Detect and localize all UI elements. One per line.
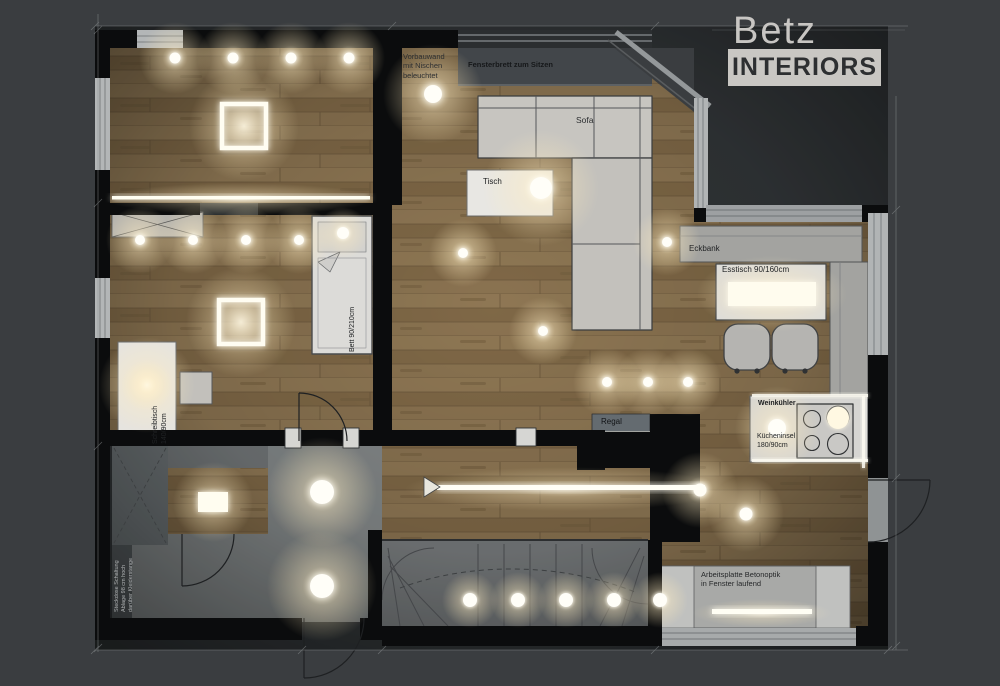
led-strip-office [112,196,370,200]
window-right-living [694,98,708,208]
window-left-bedroom [95,278,110,338]
ceiling-light [294,235,304,245]
led-strip-wall [862,396,865,468]
pendant-panel-dining [728,282,816,306]
hall-light [310,480,334,504]
ceiling-light [458,248,468,258]
led-strip-island-bottom [752,459,868,462]
ceiling-light [170,53,181,64]
stair-light [559,593,573,607]
hall-light [310,574,334,598]
ceiling-light [602,377,612,387]
island-light [768,419,786,437]
led-strip-worktop [712,609,812,614]
ceiling-light [135,235,145,245]
stair-light [653,593,667,607]
door-opening-right [868,478,888,542]
stair-light [463,593,477,607]
window-right-dining [868,213,888,355]
ceiling-light [344,53,355,64]
brand-wordmark-box: INTERIORS [728,49,881,86]
brand-name: Betz [733,10,817,53]
led-frame-light [222,104,266,148]
shelf-regal [592,414,650,432]
ceiling-light [241,235,251,245]
ceiling-light [538,326,548,336]
ceiling-light [643,377,653,387]
ceiling-light [228,53,239,64]
led-panel-utility [198,492,228,512]
led-strip-island-top [752,394,868,397]
led-frame-light [219,300,263,344]
floorplan-graphic [0,0,1000,686]
ceiling-light-bed [337,227,349,239]
stair-light [511,593,525,607]
window-bottom-kitchen [662,628,856,646]
brand-wordmark: INTERIORS [732,53,877,82]
ceiling-light [188,235,198,245]
ceiling-light [662,237,672,247]
ceiling-light [424,85,442,103]
floorplan-rendering: Vorbauwand mit Nischen beleuchtet Fenste… [0,0,1000,686]
window-left-office [95,78,110,170]
ceiling-light [530,177,552,199]
cooktop-glow [827,407,849,429]
ceiling-light [286,53,297,64]
window-dining-top [706,205,862,222]
ceiling-light [683,377,693,387]
desk-light [121,359,173,411]
led-bar-corridor [437,485,705,490]
ceiling-light [740,508,753,521]
stair-light [607,593,621,607]
